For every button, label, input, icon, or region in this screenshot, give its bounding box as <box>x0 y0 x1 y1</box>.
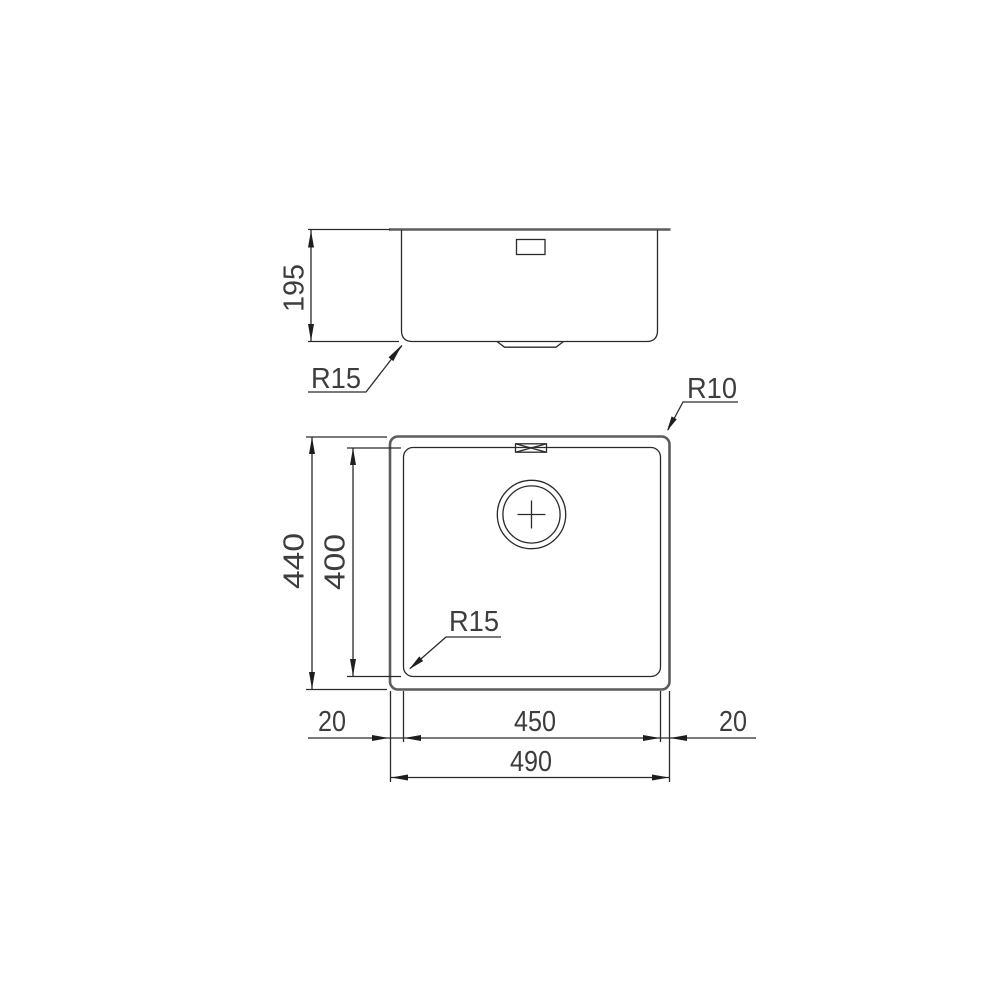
side-bowl-profile <box>402 230 658 342</box>
sink-dimension-drawing: 195 R15 440 <box>0 0 1000 1000</box>
outer-width-label: 490 <box>510 746 552 778</box>
leader-arrowhead <box>389 345 403 361</box>
arrowhead-right <box>643 735 660 741</box>
bowl-radius-label: R15 <box>449 606 499 638</box>
width-dimensions: 20 450 20 490 <box>308 691 756 782</box>
plan-view: 440 400 R10 R15 <box>279 373 756 782</box>
side-drain-recess <box>497 342 564 348</box>
technical-drawing-canvas: 195 R15 440 <box>0 0 1000 1000</box>
plan-outer-flange <box>390 437 670 690</box>
bowl-height-label: 400 <box>320 534 352 590</box>
bowl-radius-callout: R15 <box>409 606 501 670</box>
arrowhead-left <box>404 735 421 741</box>
side-depth-dimension: 195 <box>279 230 399 342</box>
side-radius-label: R15 <box>311 363 361 395</box>
side-overflow-opening <box>517 240 546 255</box>
arrowhead-right <box>652 775 669 781</box>
outer-height-label: 440 <box>279 533 311 589</box>
side-view: 195 R15 <box>279 230 671 396</box>
side-radius-callout: R15 <box>308 345 402 395</box>
left-rim-label: 20 <box>318 706 346 738</box>
plan-drain-hole <box>497 480 565 548</box>
arrowhead-left <box>391 775 408 781</box>
depth-dimension-label: 195 <box>279 264 311 312</box>
leader-line <box>668 402 738 430</box>
bowl-width-label: 450 <box>514 706 556 738</box>
arrowhead-right <box>372 735 389 741</box>
arrowhead-down <box>308 324 314 341</box>
outer-radius-label: R10 <box>687 373 737 405</box>
arrowhead-down <box>309 672 315 689</box>
right-rim-label: 20 <box>719 706 747 738</box>
outer-radius-callout: R10 <box>667 373 738 431</box>
arrowhead-down <box>350 659 356 676</box>
leader-arrowhead <box>667 416 677 431</box>
leader-line <box>410 637 501 669</box>
arrowhead-left <box>670 735 687 741</box>
arrowhead-up <box>308 231 314 248</box>
drain-center-mark <box>518 501 546 529</box>
arrowhead-up <box>309 437 315 454</box>
plan-bowl <box>404 448 661 677</box>
arrowhead-up <box>350 448 356 465</box>
